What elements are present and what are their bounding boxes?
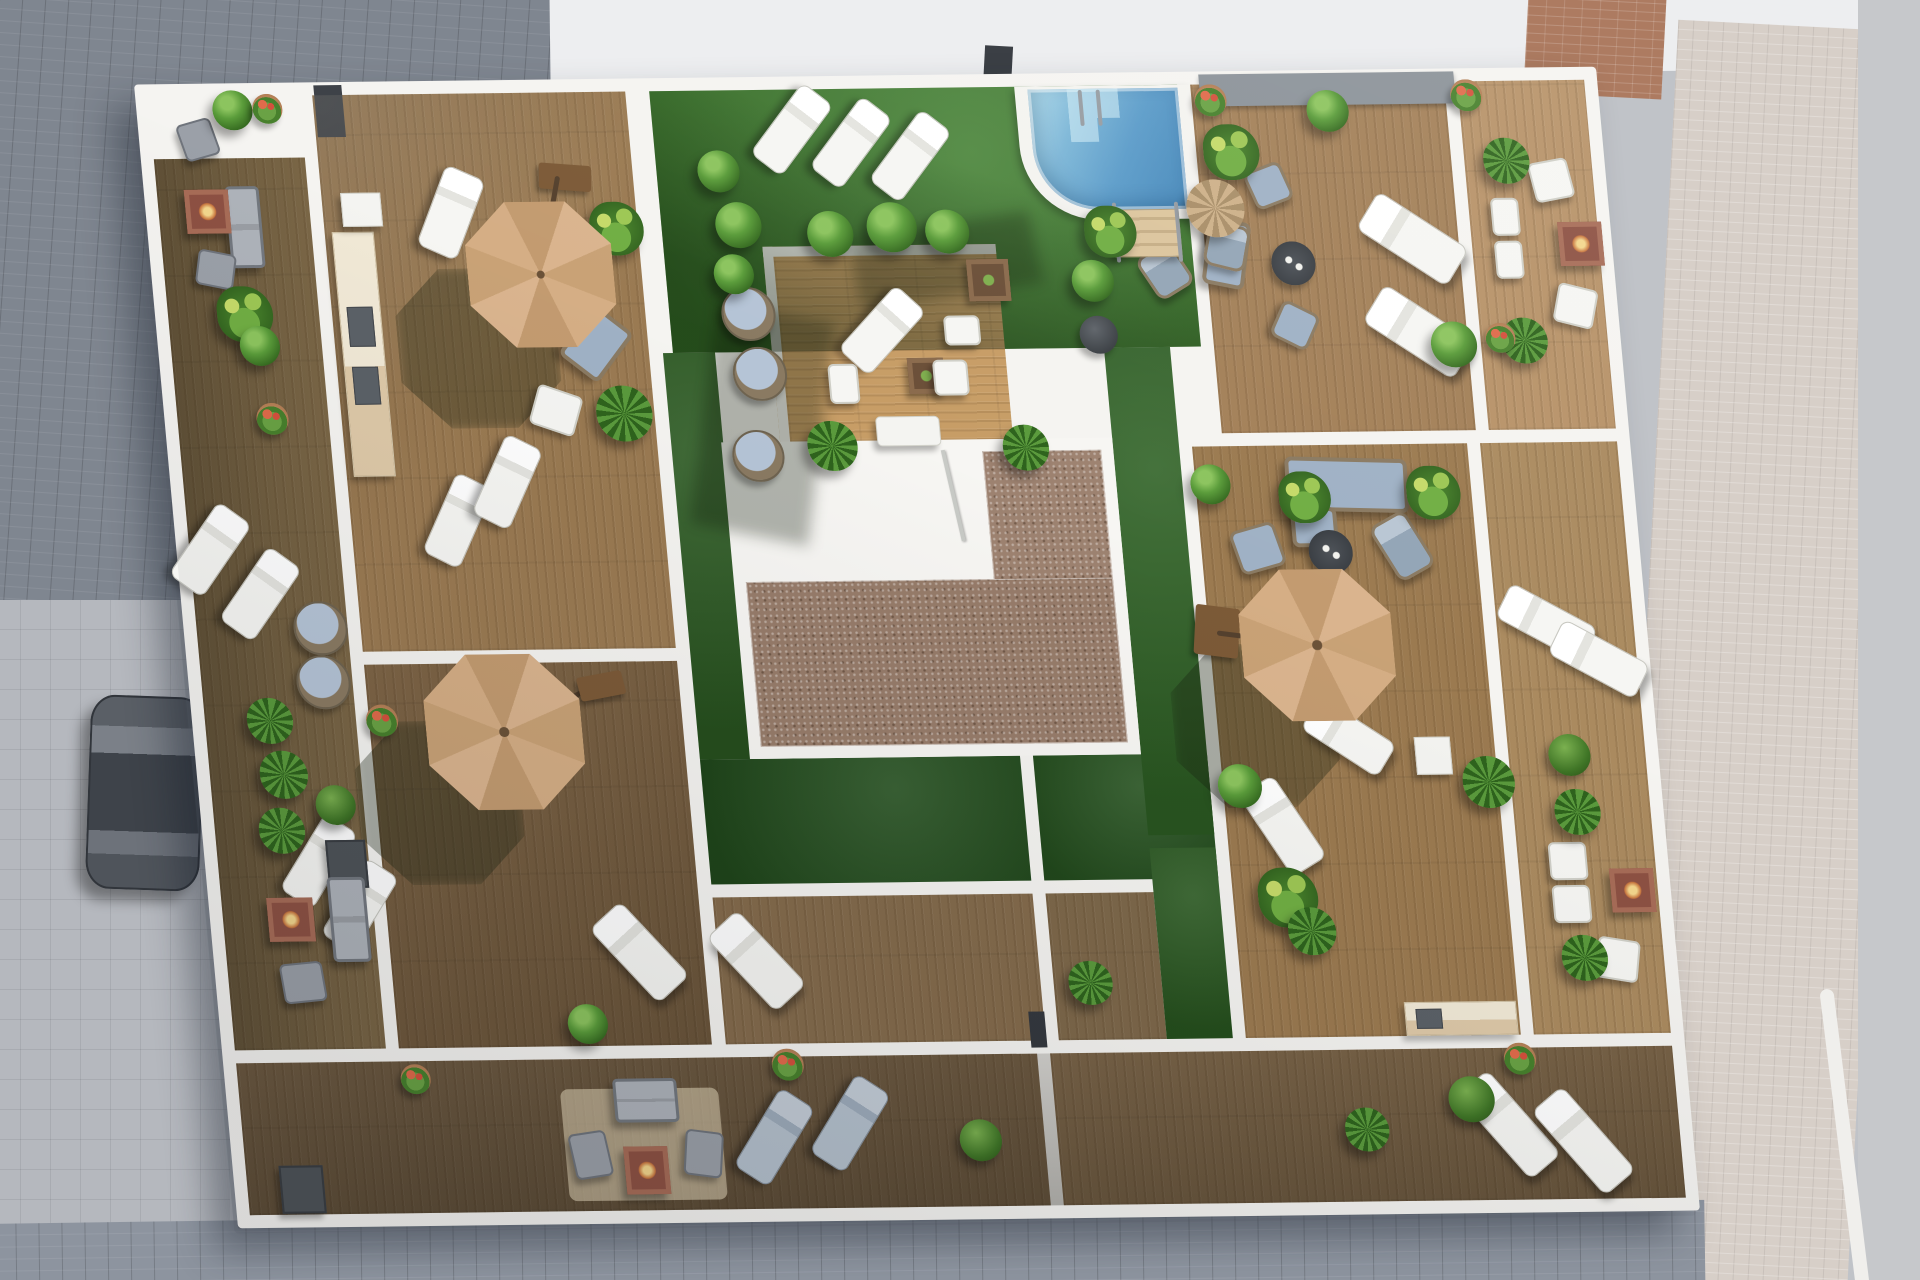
- planter-square-green: [966, 259, 1012, 301]
- fire-table: [1609, 868, 1657, 912]
- counter-sink: [346, 307, 376, 347]
- fire-table: [184, 189, 232, 233]
- table-square-white: [1414, 736, 1453, 774]
- seat-white: [1547, 842, 1588, 880]
- table-square-white: [340, 193, 383, 227]
- lawn-bottom: [700, 756, 1031, 885]
- planter-dark: [278, 1165, 326, 1213]
- car: [85, 694, 206, 892]
- sofa-gray: [326, 877, 372, 962]
- seat-white: [827, 364, 861, 404]
- armchair-gray: [195, 248, 237, 291]
- counter-sink: [1415, 1009, 1443, 1029]
- armchair-gray: [279, 961, 329, 1005]
- seat-white: [1494, 241, 1525, 279]
- seat-white: [932, 359, 970, 395]
- armchair-gray: [175, 117, 222, 163]
- plant-bush: [211, 90, 255, 130]
- flower-pot: [251, 94, 284, 124]
- seat-white: [1551, 885, 1592, 923]
- fire-table: [1557, 222, 1605, 266]
- core-gravel-bottom: [746, 578, 1128, 747]
- armchair-gray: [684, 1128, 724, 1178]
- rooftop-plan-render: [0, 0, 1920, 1280]
- street-right: [1858, 0, 1920, 1280]
- terrace-mid-south-2: [1045, 892, 1166, 1040]
- sofa-gray: [612, 1078, 680, 1123]
- fire-table: [266, 897, 316, 942]
- fire-table: [623, 1146, 671, 1194]
- counter-grill: [352, 367, 381, 405]
- seat-white: [1490, 198, 1521, 236]
- bench-brown: [539, 162, 591, 192]
- rooftop-unit: [313, 85, 346, 137]
- bench-white: [875, 416, 942, 447]
- wall-post: [1028, 1011, 1047, 1047]
- seat-white: [943, 315, 982, 345]
- building-rooftop: [134, 67, 1700, 1229]
